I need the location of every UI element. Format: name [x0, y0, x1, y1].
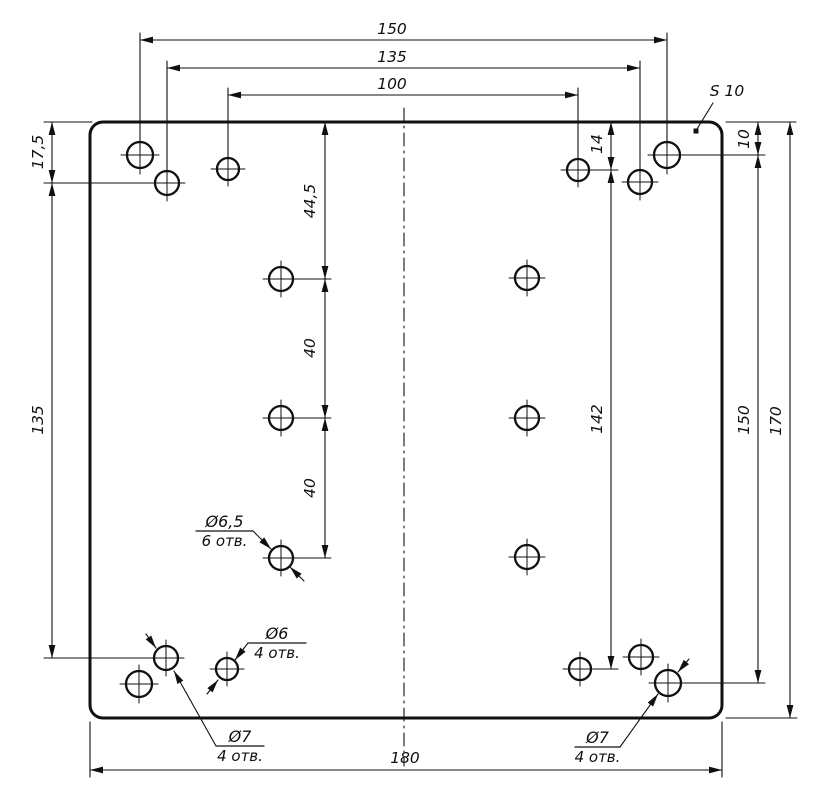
callout-d6-flank-arrow: [207, 680, 218, 692]
dim-100-top-label: 100: [377, 75, 407, 93]
plate-technical-drawing: 15013510017,513544,540401414210150170180…: [0, 0, 833, 809]
dim-170-right-label: 170: [767, 406, 785, 436]
thickness-note-dot: [694, 129, 699, 134]
thickness-note-label: S 10: [710, 82, 745, 100]
dim-150-top-label: 150: [377, 20, 407, 38]
callout-d6-diameter-label: Ø6: [265, 624, 289, 643]
dim-142-inner-arrow: [608, 656, 615, 669]
dim-170-right-arrow: [787, 705, 794, 718]
dim-180-bottom-arrow: [709, 767, 722, 774]
dim-135-top-arrow: [167, 65, 180, 72]
dim-44_5-mid-label: 44,5: [301, 184, 319, 219]
dim-14-inner-arrow: [608, 157, 615, 170]
dim-100-top-arrow: [565, 92, 578, 99]
dim-135-left-arrow: [49, 645, 56, 658]
dim-14-inner-label: 14: [588, 134, 606, 154]
dim-135-top-label: 135: [377, 48, 407, 66]
callout-d7-bottom-left-diameter-label: Ø7: [228, 727, 253, 746]
dim-17_5-left-arrow: [49, 122, 56, 135]
dim-170-right-arrow: [787, 122, 794, 135]
dim-44_5-mid-arrow: [322, 122, 329, 135]
dim-180-bottom-label: 180: [390, 749, 420, 767]
plate-outline: [90, 122, 722, 718]
dim-10-right-arrow: [755, 122, 762, 135]
callout-d6-count-label: 4 отв.: [254, 644, 300, 662]
dim-135-top-arrow: [627, 65, 640, 72]
callout-d6_5-diameter-label: Ø6,5: [204, 512, 243, 531]
dim-142-inner-arrow: [608, 170, 615, 183]
dim-14-inner-arrow: [608, 122, 615, 135]
dim-40-mid-a-label: 40: [301, 338, 319, 358]
dim-10-right-arrow: [755, 142, 762, 155]
dim-150-right-arrow: [755, 155, 762, 168]
dim-44_5-mid-arrow: [322, 266, 329, 279]
dim-135-left-label: 135: [29, 405, 47, 435]
dim-150-right-label: 150: [735, 405, 753, 435]
dim-40-mid-b-arrow: [322, 545, 329, 558]
callout-d7-bottom-right-diameter-label: Ø7: [585, 728, 610, 747]
dim-40-mid-a-arrow: [322, 405, 329, 418]
callout-d7-bottom-left-flank-arrow: [146, 635, 156, 648]
dim-40-mid-a-arrow: [322, 279, 329, 292]
thickness-note-leader: [697, 103, 713, 129]
dim-10-right-label: 10: [735, 129, 753, 149]
dim-142-inner-label: 142: [588, 404, 606, 434]
drawing-sheet: 15013510017,513544,540401414210150170180…: [0, 0, 833, 809]
dim-17_5-left-arrow: [49, 170, 56, 183]
dim-150-top-arrow: [140, 37, 153, 44]
dim-100-top-arrow: [228, 92, 241, 99]
dim-135-left-arrow: [49, 183, 56, 196]
callout-d6_5-count-label: 6 отв.: [202, 532, 248, 550]
dim-17_5-left-label: 17,5: [29, 135, 47, 170]
callout-d7-bottom-left-leader-arrow: [174, 671, 183, 684]
dim-40-mid-b-label: 40: [301, 478, 319, 498]
callout-d6-leader-arrow: [235, 648, 246, 660]
dim-40-mid-b-arrow: [322, 418, 329, 431]
dim-150-top-arrow: [654, 37, 667, 44]
dim-180-bottom-arrow: [90, 767, 103, 774]
dim-150-right-arrow: [755, 670, 762, 683]
callout-d7-bottom-left-count-label: 4 отв.: [217, 747, 263, 765]
callout-d7-bottom-right-leader-arrow: [648, 694, 658, 707]
callout-d7-bottom-right-count-label: 4 отв.: [575, 748, 621, 766]
